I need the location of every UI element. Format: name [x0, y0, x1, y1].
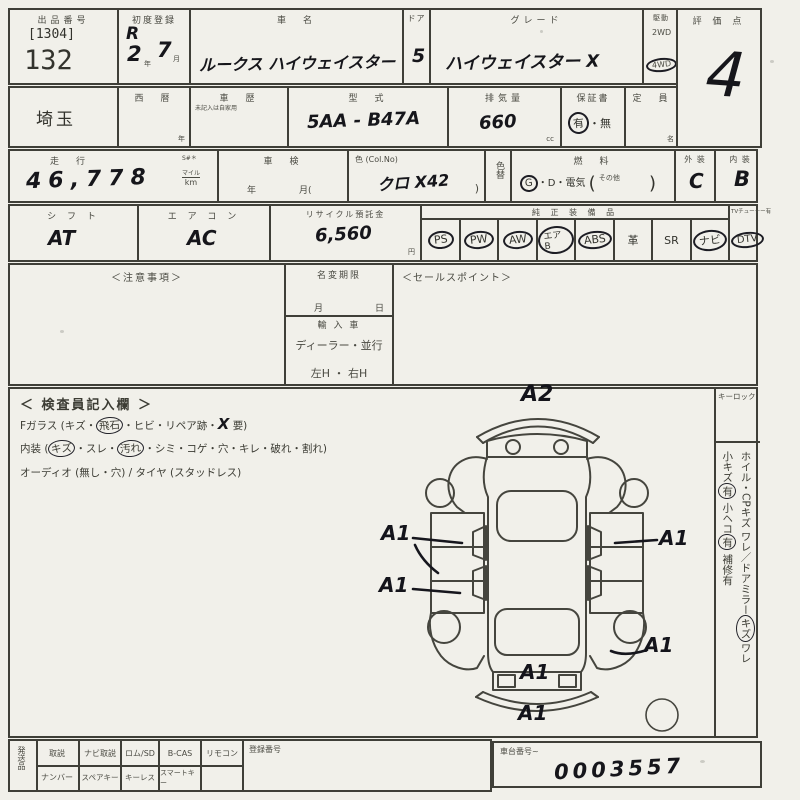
damage-label-a1-left-lower: A1 [379, 573, 408, 597]
interior-tail: ・シミ・コゲ・穴・キレ・破れ・割れ) [144, 443, 327, 455]
exterior-grade-label: 外 装 [676, 154, 714, 165]
tv-tuner-label: TVチューナー有 [731, 207, 771, 215]
interior-circled-scratch: キズ [48, 439, 76, 458]
audio-tire-line: オーディオ (無し・穴) / タイヤ (スタッドレス) [20, 465, 241, 480]
import-dealer-options: ディーラー・並行 [286, 337, 392, 353]
aircon-value: AC [187, 226, 217, 250]
damage-label-a2-front: A2 [521, 382, 553, 407]
model-code-value: 5AA - B47A [307, 108, 421, 133]
car-name-cell: 車 名 ルークス ハイウェイスター [189, 10, 402, 83]
door-label: ドア [404, 13, 429, 24]
fuel-options: ・D・電気 [538, 178, 586, 189]
wheel-damage-tail: ワレ [740, 642, 752, 663]
first-registration-cell: 初度登録 R 2 年 7 月 [117, 10, 189, 83]
model-code-label: 型 式 [289, 91, 447, 104]
equipment-item-label: PS [427, 230, 454, 251]
equipment-item-label: AW [502, 229, 534, 250]
small-dent-yes-circled: 有 [718, 534, 736, 551]
drive-cell: 駆動 2WD 4WD [642, 10, 678, 83]
chassis-number-label: 車台番号~ [500, 746, 539, 757]
sales-point-cell: ＜セールスポイント＞ [392, 265, 764, 384]
wheel-damage-line1: ホイル・CPキズ ワレ／ドアミラーキズワレ [736, 451, 754, 731]
interior-pre: 内装 ( [20, 443, 48, 455]
accessory-smart-key: スマートキー [158, 765, 200, 790]
damage-label-a1-right-lower: A1 [644, 633, 673, 657]
reg-month-value: 7 [157, 38, 172, 62]
tv-tuner-value: DTV [730, 230, 764, 249]
door-cell: ドア 5 [402, 10, 429, 83]
recycle-deposit-cell: リサイクル預託金 6,560 円 [269, 206, 420, 260]
equipment-item-label: 革 [628, 232, 639, 248]
shaken-cell: 車 検 年 月( [217, 151, 347, 201]
equipment-item-abs: ABS [574, 220, 613, 260]
equipment-item-label: PW [463, 230, 494, 251]
shift-value: AT [48, 226, 75, 250]
auction-sheet: 出品番号 [1304] 132 初度登録 R 2 年 7 月 車 名 ルークス … [0, 0, 800, 800]
mileage-cell: 走 行 S#＊ 46,778 マイル km [10, 151, 217, 201]
displacement-label: 排気量 [449, 91, 560, 104]
front-glass-pre: Fガラス (キズ・ [20, 420, 96, 432]
warranty-label: 保証書 [562, 91, 624, 104]
equipment-item-sr: SR [651, 220, 690, 260]
interior-grade-value: B [734, 167, 750, 191]
mileage-row: 走 行 S#＊ 46,778 マイル km 車 検 年 月( 色 (Col.No… [8, 149, 758, 203]
score-value: 4 [704, 37, 748, 113]
exterior-grade-value: C [689, 169, 704, 193]
exterior-grade-cell: 外 装 C [674, 151, 714, 201]
fuel-label: 燃 料 [512, 154, 674, 167]
drive-2wd-option: 2WD [652, 28, 671, 37]
drive-label: 駆動 [644, 13, 678, 23]
car-diagram [380, 385, 710, 737]
scan-speck [700, 760, 705, 763]
chassis-number-value: 0003557 [553, 754, 684, 785]
scan-speck [540, 30, 543, 33]
era-value: R [126, 24, 139, 44]
mileage-unit-top: マイル [182, 168, 200, 177]
car-name-label: 車 名 [191, 13, 402, 26]
equipment-label: 純 正 装 備 品 [422, 207, 728, 218]
grade-cell: グレード ハイウェイスター X [429, 10, 642, 83]
mileage-label: 走 行 [50, 154, 89, 167]
front-glass-mid: ・ヒビ・リペア跡・ [123, 420, 218, 432]
month-unit: 月 [173, 54, 180, 64]
prefecture-value: 埼玉 [36, 105, 76, 130]
front-glass-tail: 要) [233, 420, 248, 432]
capacity-cell: 定 員 名 [624, 88, 678, 146]
drive-4wd-option: 4WD [645, 56, 677, 73]
shift-cell: シ フ ト AT [10, 206, 137, 260]
recycle-deposit-value: 6,560 [314, 223, 372, 247]
equipment-item-label: ABS [577, 229, 613, 250]
header-row: 出品番号 [1304] 132 初度登録 R 2 年 7 月 車 名 ルークス … [8, 8, 758, 85]
equipment-item-pw: PW [459, 220, 497, 260]
recycle-deposit-label: リサイクル預託金 [271, 209, 420, 220]
seireki-cell: 西 暦 年 [117, 88, 189, 146]
score-label: 評 価 点 [678, 14, 760, 27]
recycle-deposit-unit: 円 [408, 247, 415, 257]
interior-grade-cell: 内 装 B [714, 151, 764, 201]
displacement-cell: 排気量 660 cc [447, 88, 560, 146]
aircon-label: エ ア コ ン [139, 209, 269, 222]
interior-grade-label: 内 装 [716, 154, 764, 165]
right-column: キーロック ホイル・CPキズ ワレ／ドアミラーキズワレ 小キズ有 小ヘコ有 補修… [714, 389, 760, 736]
accessory-rom-sd: ロム/SD [120, 741, 158, 765]
damage-label-a1-left-upper: A1 [381, 521, 410, 545]
warranty-no-option: 無 [600, 117, 611, 130]
equipment-item-label: エアB [537, 224, 576, 256]
front-glass-circled-stone-chip: 飛石 [96, 416, 124, 435]
seireki-unit: 年 [178, 134, 185, 144]
history-cell: 車 歴 未記入は自家用 [189, 88, 287, 146]
front-glass-line: Fガラス (キズ・飛石・ヒビ・リペア跡・X 要) [20, 415, 247, 434]
color-change-label: 色替 [493, 161, 506, 179]
history-note: 未記入は自家用 [195, 103, 237, 112]
reg-year-value: 2 [127, 42, 142, 66]
lot-number-value: 132 [24, 45, 73, 76]
accessory-keyless: キーレス [120, 765, 158, 790]
color-label: 色 (Col.No) [355, 154, 398, 165]
interior-condition-line: 内装 (キズ・スレ・汚れ・シミ・コゲ・穴・キレ・破れ・割れ) [20, 440, 327, 457]
accessory-bcas: B-CAS [158, 741, 200, 765]
wheel-damage-notes: ホイル・CPキズ ワレ／ドアミラーキズワレ 小キズ有 小ヘコ有 補修有 [718, 451, 755, 731]
capacity-label: 定 員 [626, 91, 678, 104]
interior-mid: ・スレ・ [75, 443, 117, 455]
region-row: 埼玉 西 暦 年 車 歴 未記入は自家用 型 式 5AA - B47A 排気量 … [8, 86, 758, 148]
warranty-cell: 保証書 有・無 [560, 88, 624, 146]
damage-label-a1-rear-bumper: A1 [518, 701, 547, 725]
registration-number-label: 登録番号 [249, 744, 281, 755]
color-value: クロ X42 [376, 167, 450, 196]
displacement-value: 660 [478, 111, 517, 134]
equipment-item-aw: AW [497, 220, 536, 260]
small-dent-label: 小ヘコ [721, 502, 733, 534]
name-change-day: 日 [375, 301, 384, 314]
car-name-value: ルークス ハイウェイスター [199, 48, 396, 75]
equipment-item-navi: ナビ [690, 220, 728, 260]
scan-speck [770, 60, 774, 63]
handle-options: 左H ・ 右H [286, 365, 392, 381]
accessories-grid: 発送品 取説 ナビ取説 ロム/SD B-CAS リモコン ナンバー スペアキー … [8, 739, 492, 792]
mileage-value: 46,778 [26, 165, 154, 194]
shaken-month-unit: 月( [299, 183, 312, 196]
equipment-row: シ フ ト AT エ ア コ ン AC リサイクル預託金 6,560 円 純 正… [8, 204, 758, 262]
lot-number-label: 出品番号 [10, 13, 117, 26]
front-glass-hand-mark: X [218, 415, 230, 433]
lot-number-cell: 出品番号 [1304] 132 [10, 10, 117, 83]
inspector-title: ＜ 検査員記入欄 ＞ [20, 394, 153, 413]
hand-arrow-strokes [413, 538, 657, 654]
color-close-paren: ) [475, 182, 479, 195]
fuel-other-label: その他 [599, 174, 620, 182]
wheel-damage-text: ホイル・CPキズ ワレ／ドアミラー [740, 451, 752, 615]
equipment-item-label: SR [664, 234, 679, 247]
equipment-item-ps: PS [420, 220, 459, 260]
small-scratch-label: 小キズ [721, 451, 733, 483]
score-cell: 評 価 点 4 [676, 8, 762, 148]
displacement-unit: cc [546, 135, 554, 143]
equipment-item-label: ナビ [692, 228, 728, 252]
grade-value: ハイウェイスター X [445, 47, 600, 75]
color-cell: 色 (Col.No) クロ X42 ) [347, 151, 484, 201]
warranty-dot: ・ [589, 117, 600, 130]
chassis-number-box: 車台番号~ 0003557 [492, 741, 762, 788]
sales-point-label: ＜セールスポイント＞ [402, 269, 512, 284]
color-change-cell: 色替 [484, 151, 510, 201]
shaken-year-unit: 年 [247, 183, 256, 196]
notes-label: ＜注意事項＞ [10, 269, 284, 284]
year-unit: 年 [144, 59, 151, 69]
key-lock-box: キーロック [716, 389, 760, 443]
accessory-navi-manual: ナビ取説 [78, 741, 120, 765]
warranty-yes-option: 有 [567, 111, 590, 135]
shaken-label: 車 検 [219, 154, 347, 167]
name-change-label: 名変期限 [286, 268, 392, 281]
wheel-damage-line2: 小キズ有 小ヘコ有 補修有 [718, 451, 736, 731]
seireki-label: 西 暦 [119, 91, 189, 104]
import-car-label: 輸 入 車 [286, 318, 392, 331]
equipment-item-leather: 革 [613, 220, 651, 260]
interior-circled-dirt: 汚れ [117, 439, 145, 458]
shift-label: シ フ ト [10, 209, 137, 222]
accessory-manual: 取説 [36, 741, 78, 765]
accessories-side-label: 発送品 [16, 746, 27, 770]
equipment-item-airbag: エアB [536, 220, 574, 260]
notes-row: ＜注意事項＞ 名変期限 月 日 輸 入 車 ディーラー・並行 左H ・ 右H ＜… [8, 263, 758, 386]
grade-label: グレード [431, 13, 642, 26]
scan-speck [60, 330, 64, 333]
damage-label-a1-rear-panel: A1 [520, 660, 549, 684]
fuel-close-paren: ) [649, 173, 656, 194]
tv-tuner-cell: TVチューナー有 DTV [728, 206, 764, 260]
model-code-cell: 型 式 5AA - B47A [287, 88, 447, 146]
mileage-unit: km [182, 177, 200, 187]
fuel-gasoline-option: G [519, 174, 538, 193]
name-change-month: 月 [314, 301, 323, 314]
accessory-number-plate: ナンバー [36, 765, 78, 790]
door-value: 5 [412, 45, 425, 67]
fuel-open-paren: ( [589, 173, 596, 194]
accessory-blank-cell [200, 765, 242, 790]
key-lock-label: キーロック [718, 391, 756, 402]
equipment-header: 純 正 装 備 品 [420, 206, 728, 220]
notes-cell: ＜注意事項＞ [10, 265, 284, 384]
registration-number-cell: 登録番号 [242, 741, 490, 790]
damage-label-a1-right-upper: A1 [659, 526, 688, 550]
mileage-s-mark: S#＊ [182, 153, 197, 162]
capacity-unit: 名 [667, 134, 674, 144]
small-scratch-yes-circled: 有 [718, 483, 736, 500]
accessory-remote: リモコン [200, 741, 242, 765]
prefecture-cell: 埼玉 [10, 88, 117, 146]
lot-bracket: [1304] [28, 27, 75, 42]
accessory-spare-key: スペアキー [78, 765, 120, 790]
name-change-cell: 名変期限 月 日 輸 入 車 ディーラー・並行 左H ・ 右H [284, 265, 392, 384]
repair-label: 補修有 [721, 554, 733, 586]
mirror-scratch-circled: キズ [736, 615, 754, 642]
aircon-cell: エ ア コ ン AC [137, 206, 269, 260]
fuel-cell: 燃 料 G・D・電気 ( その他 ) [510, 151, 674, 201]
